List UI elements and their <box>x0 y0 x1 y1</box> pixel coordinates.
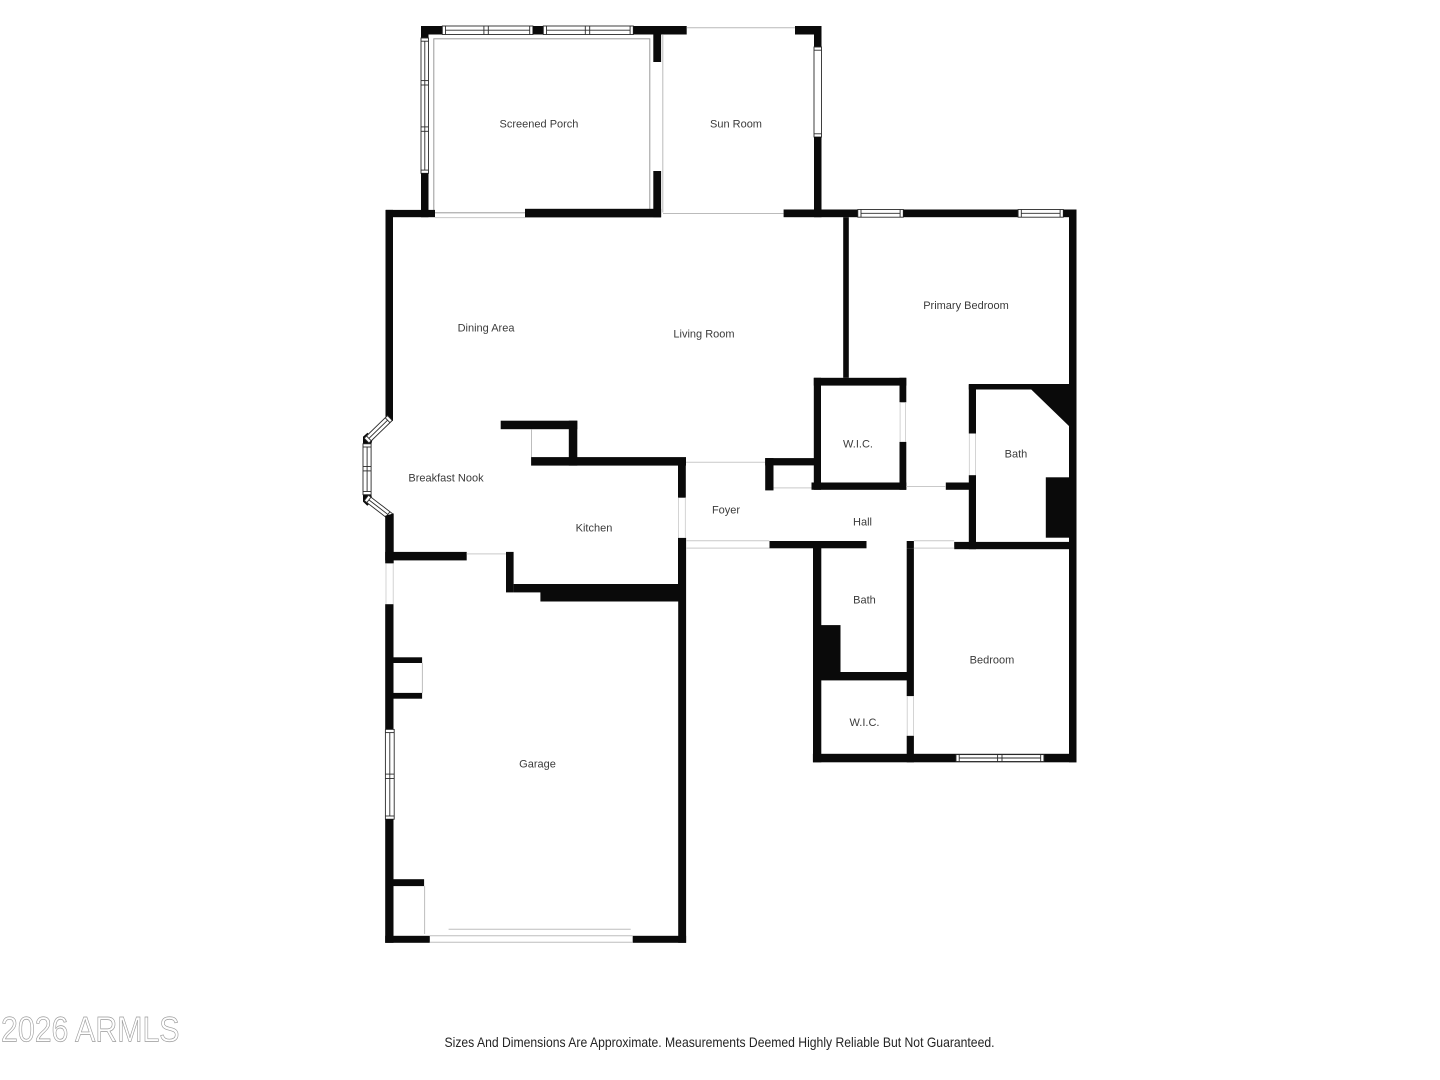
svg-text:Sun Room: Sun Room <box>710 119 762 131</box>
svg-text:Screened Porch: Screened Porch <box>500 119 579 131</box>
svg-text:Garage: Garage <box>519 759 556 771</box>
svg-text:Primary Bedroom: Primary Bedroom <box>923 300 1009 312</box>
svg-text:Breakfast Nook: Breakfast Nook <box>408 473 484 485</box>
svg-text:Bath: Bath <box>1005 449 1028 461</box>
svg-text:Hall: Hall <box>853 517 872 529</box>
svg-text:Kitchen: Kitchen <box>576 523 613 535</box>
svg-text:Sizes And Dimensions Are Appro: Sizes And Dimensions Are Approximate. Me… <box>445 1034 995 1050</box>
svg-text:W.I.C.: W.I.C. <box>850 717 880 729</box>
svg-text:Bedroom: Bedroom <box>970 655 1015 667</box>
svg-text:Bath: Bath <box>853 595 876 607</box>
svg-text:2026 ARMLS: 2026 ARMLS <box>1 1010 180 1050</box>
svg-text:Dining Area: Dining Area <box>458 323 516 335</box>
svg-text:Foyer: Foyer <box>712 505 740 517</box>
svg-text:W.I.C.: W.I.C. <box>843 439 873 451</box>
svg-text:Living Room: Living Room <box>673 329 734 341</box>
